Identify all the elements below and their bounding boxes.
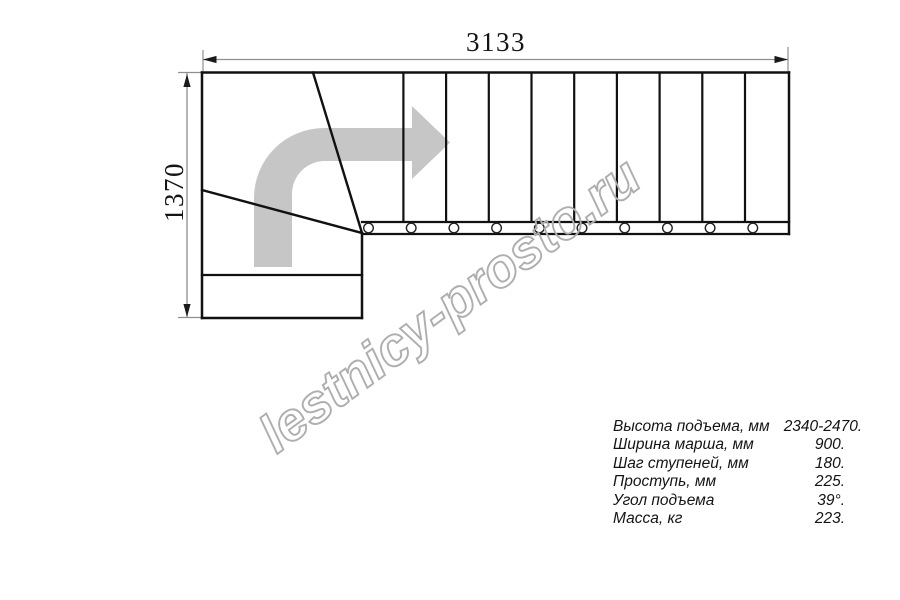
width-dimension: 3133 <box>203 27 788 71</box>
watermark-text: lestnicy-prosto.ru <box>248 146 651 464</box>
baluster-marker <box>449 223 459 233</box>
height-dimension-value: 1370 <box>159 162 189 222</box>
specs-table: Высота подъема, мм 2340-2470. Ширина мар… <box>613 418 845 528</box>
spec-label: Ширина марша, мм <box>613 436 754 454</box>
width-dimension-value: 3133 <box>466 27 526 57</box>
spec-row-flight-width: Ширина марша, мм 900. <box>613 436 845 454</box>
direction-arrow-icon <box>254 106 450 267</box>
spec-row-step-pitch: Шаг ступеней, мм 180. <box>613 455 845 473</box>
spec-value: 2340-2470. <box>784 418 862 436</box>
spec-value: 180. <box>815 455 845 473</box>
spec-row-mass: Масса, кг 223. <box>613 510 845 528</box>
spec-value: 225. <box>815 473 845 491</box>
spec-row-rise-height: Высота подъема, мм 2340-2470. <box>613 418 845 436</box>
spec-value: 223. <box>815 510 845 528</box>
baluster-marker <box>748 223 758 233</box>
spec-label: Шаг ступеней, мм <box>613 455 749 473</box>
baluster-marker <box>620 223 630 233</box>
baluster-marker <box>364 223 374 233</box>
arrowhead-down-icon <box>183 304 190 317</box>
spec-row-tread: Проступь, мм 225. <box>613 473 845 491</box>
spec-label: Угол подъема <box>613 492 714 510</box>
spec-label: Масса, кг <box>613 510 682 528</box>
arrowhead-up-icon <box>183 74 190 87</box>
spec-value: 39°. <box>817 492 845 510</box>
baluster-marker <box>663 223 673 233</box>
baluster-marker <box>705 223 715 233</box>
arrowhead-right-icon <box>775 56 789 63</box>
stair-drawing-page: { "dimensions": { "width_label": "3133",… <box>0 0 900 600</box>
spec-label: Проступь, мм <box>613 473 716 491</box>
baluster-marker <box>406 223 416 233</box>
spec-value: 900. <box>815 436 845 454</box>
height-dimension: 1370 <box>159 73 202 318</box>
arrowhead-left-icon <box>203 56 217 63</box>
spec-row-rise-angle: Угол подъема 39°. <box>613 492 845 510</box>
spec-label: Высота подъема, мм <box>613 418 770 436</box>
